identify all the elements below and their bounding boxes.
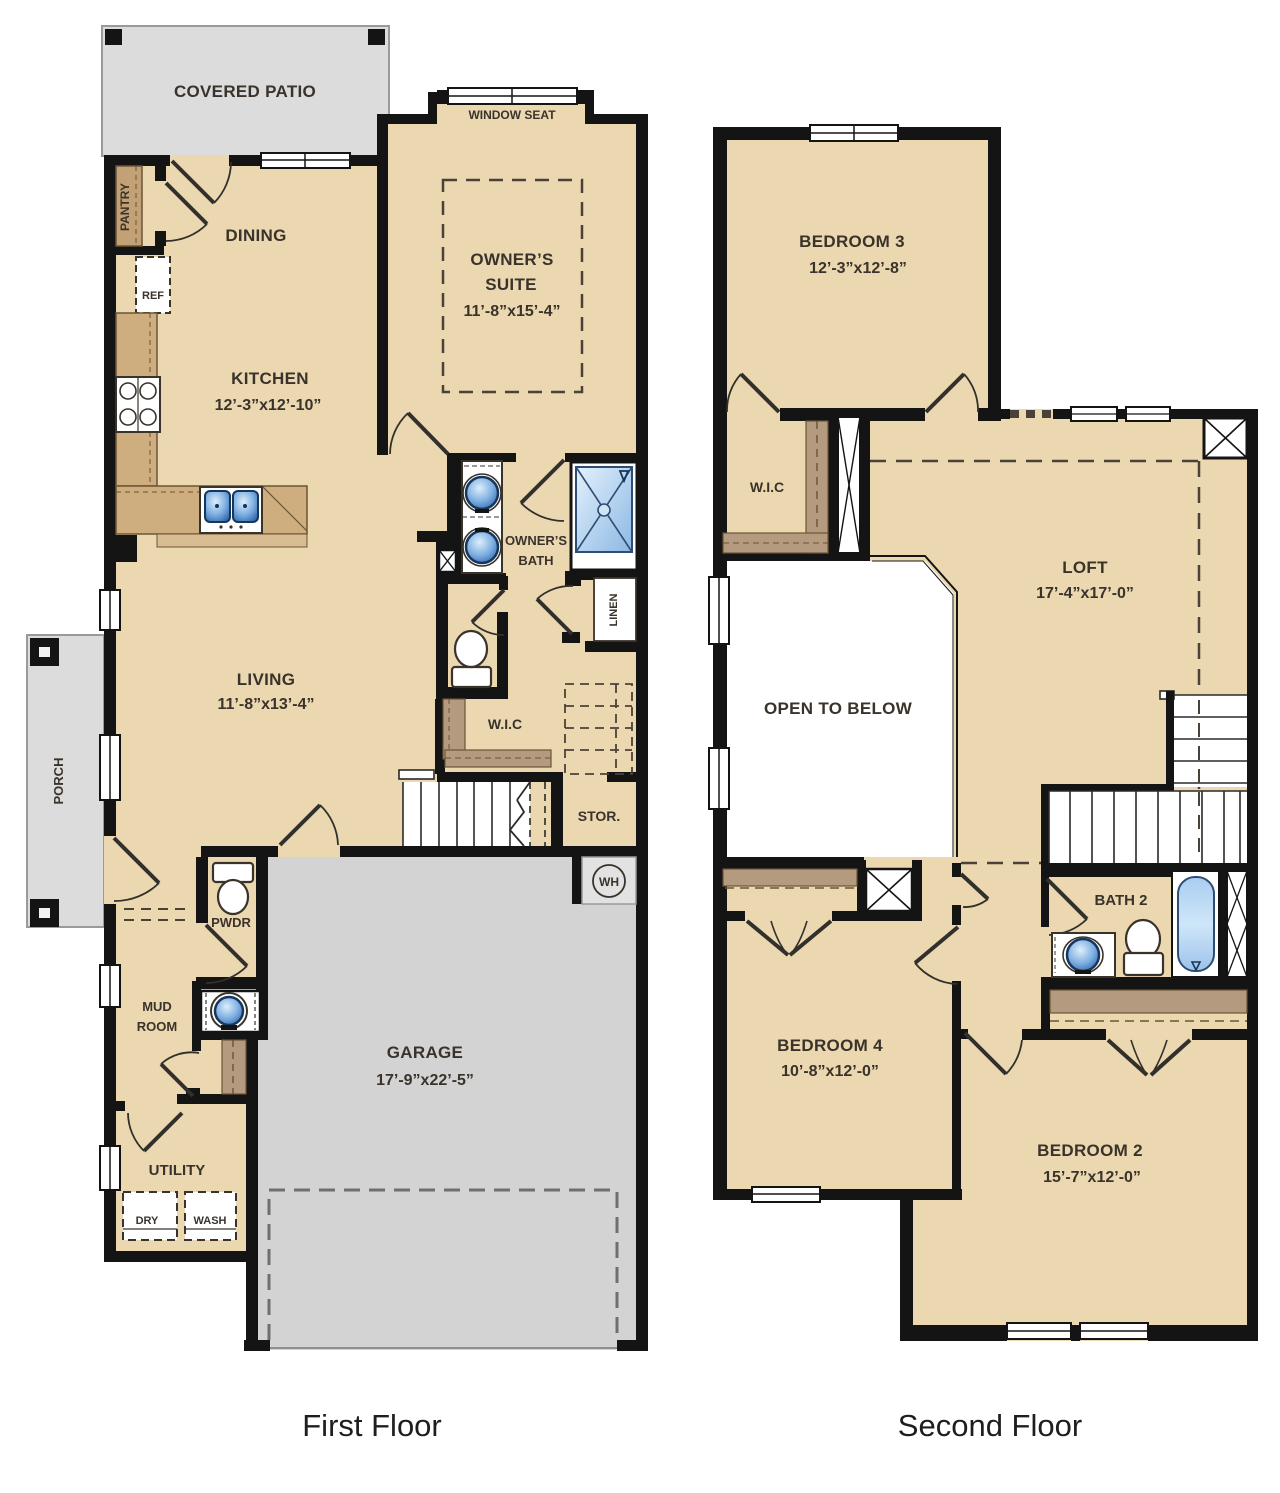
svg-text:STOR.: STOR. <box>578 808 621 824</box>
svg-text:WINDOW SEAT: WINDOW SEAT <box>468 108 556 122</box>
svg-text:OWNER’S: OWNER’S <box>470 250 553 269</box>
svg-text:GARAGE: GARAGE <box>387 1043 463 1062</box>
svg-text:Second Floor: Second Floor <box>898 1408 1082 1443</box>
svg-text:LOFT: LOFT <box>1062 558 1108 577</box>
svg-text:W.I.C: W.I.C <box>750 479 784 495</box>
svg-text:W.I.C: W.I.C <box>488 716 522 732</box>
svg-text:10’-8”x12’-0”: 10’-8”x12’-0” <box>781 1063 879 1080</box>
svg-text:COVERED PATIO: COVERED PATIO <box>174 82 316 101</box>
svg-text:BEDROOM 4: BEDROOM 4 <box>777 1036 883 1055</box>
svg-text:DRY: DRY <box>136 1215 159 1227</box>
svg-text:PWDR: PWDR <box>211 915 251 930</box>
svg-text:DINING: DINING <box>225 226 286 245</box>
svg-text:First Floor: First Floor <box>302 1408 442 1443</box>
svg-text:PANTRY: PANTRY <box>118 183 132 231</box>
svg-text:17’-9”x22’-5”: 17’-9”x22’-5” <box>376 1072 474 1089</box>
svg-text:LINEN: LINEN <box>608 593 620 626</box>
svg-text:12’-3”x12’-8”: 12’-3”x12’-8” <box>809 260 907 277</box>
svg-text:WH: WH <box>599 875 619 889</box>
svg-text:BATH: BATH <box>518 553 553 568</box>
svg-text:15’-7”x12’-0”: 15’-7”x12’-0” <box>1043 1169 1141 1186</box>
svg-text:PORCH: PORCH <box>51 758 66 805</box>
svg-text:11’-8”x15’-4”: 11’-8”x15’-4” <box>464 303 561 320</box>
svg-text:SUITE: SUITE <box>485 275 537 294</box>
svg-text:LIVING: LIVING <box>237 670 295 689</box>
svg-text:ROOM: ROOM <box>137 1019 177 1034</box>
svg-text:UTILITY: UTILITY <box>149 1162 206 1179</box>
svg-text:BATH 2: BATH 2 <box>1094 892 1147 909</box>
svg-text:REF: REF <box>142 290 164 302</box>
svg-text:11’-8”x13’-4”: 11’-8”x13’-4” <box>218 696 315 713</box>
svg-text:BEDROOM 3: BEDROOM 3 <box>799 232 905 251</box>
svg-text:12’-3”x12’-10”: 12’-3”x12’-10” <box>215 397 322 414</box>
svg-text:17’-4”x17’-0”: 17’-4”x17’-0” <box>1036 585 1134 602</box>
svg-text:OWNER’S: OWNER’S <box>505 533 567 548</box>
svg-text:OPEN TO BELOW: OPEN TO BELOW <box>764 699 913 718</box>
svg-text:BEDROOM 2: BEDROOM 2 <box>1037 1141 1143 1160</box>
svg-text:WASH: WASH <box>194 1215 227 1227</box>
svg-text:MUD: MUD <box>142 999 172 1014</box>
svg-text:KITCHEN: KITCHEN <box>231 369 309 388</box>
